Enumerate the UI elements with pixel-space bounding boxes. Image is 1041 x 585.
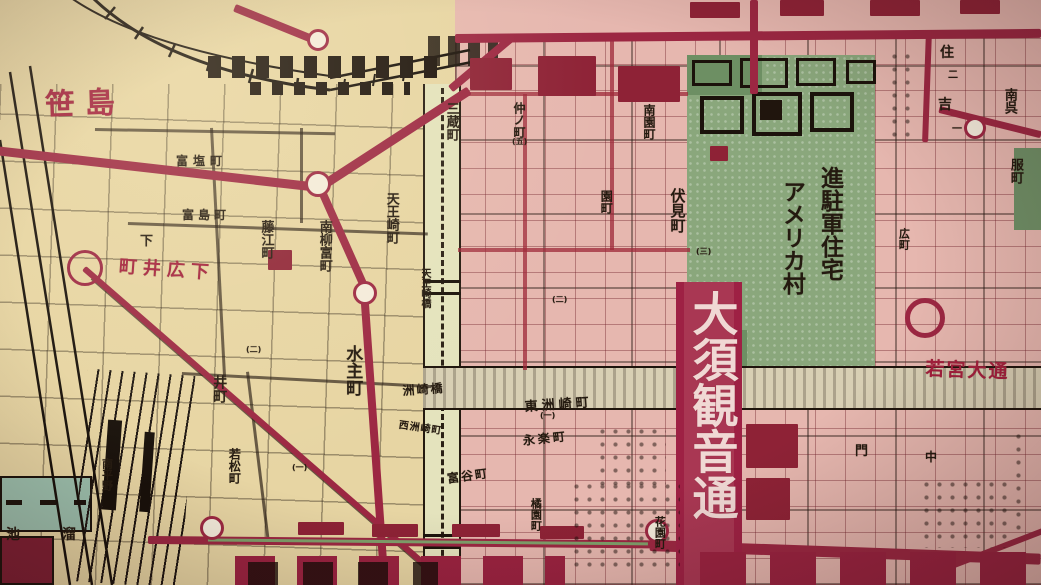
sumiyoshi-block1-label: 一 bbox=[952, 120, 962, 135]
nakano-cho-label: 仲ノ町 bbox=[510, 102, 528, 138]
nishi-suzaki-label: 西洲崎町 bbox=[398, 416, 444, 437]
sumiyoshi-1-label: 住 bbox=[940, 42, 954, 62]
sumiyoshi-block2-label: 二 bbox=[948, 66, 958, 81]
hiro-cho-label: 広町 bbox=[896, 228, 911, 250]
shimo-hiroi-label: 町井広下 bbox=[118, 252, 216, 285]
tomishio-label: 富塩町 bbox=[176, 152, 227, 169]
monzen-label: 門 bbox=[855, 440, 868, 459]
tomitani-label: 富谷町 bbox=[446, 464, 490, 487]
tennozaki-label: 天王崎町 bbox=[378, 192, 403, 244]
minami-yanagitomi-label: 南柳富町 bbox=[312, 220, 335, 272]
tennozaki-bashi-label: 天王崎橋 bbox=[418, 268, 431, 308]
osu-kannon-dori-label: 大須観音通 bbox=[686, 290, 738, 520]
fushimi-label: 伏見町 bbox=[663, 188, 692, 233]
tomishima-label: 富島町 bbox=[182, 206, 230, 223]
america-mura-label: アメリカ村 bbox=[776, 180, 806, 295]
fujie-label: 藤江町 bbox=[256, 220, 276, 259]
block-no-3-label: (三) bbox=[696, 246, 711, 257]
hanazono-label: 花園町 bbox=[652, 516, 667, 549]
naka-label: 中 bbox=[925, 448, 937, 465]
block-no-2-label: (二) bbox=[246, 344, 261, 355]
sumiyoshi-2-label: 吉 bbox=[938, 94, 952, 114]
sasajima-label: 笹島 bbox=[44, 77, 125, 124]
higashi-suzaki-label: 東洲崎町 bbox=[524, 391, 593, 415]
i-cho-label: 井町 bbox=[206, 375, 231, 403]
sono-machi-label: 園町 bbox=[596, 190, 615, 214]
shinchugun-jutaku-label: 進駐軍住宅 bbox=[814, 166, 844, 281]
wakamiya-odori-label: 若宮大通 bbox=[925, 354, 1010, 384]
block-no-1b-label: (一) bbox=[540, 410, 555, 421]
map-labels-layer: 笹島町井広下大須観音通若宮大通富島町富塩町下藤江町南柳富町水主町天王崎町井町若松… bbox=[0, 0, 1041, 585]
eiraku-label: 永楽町 bbox=[522, 427, 569, 449]
wakamatsu-label: 若松町 bbox=[224, 448, 244, 484]
minami-gofuku-b-label: 服町 bbox=[1006, 158, 1023, 184]
minami-hirano-label: 南平野 bbox=[98, 458, 115, 491]
suzaki-bashi-label: 洲崎橋 bbox=[402, 379, 445, 399]
block-no-1-label: (一) bbox=[292, 462, 307, 473]
block-no-5-label: (五) bbox=[512, 136, 527, 147]
shimo-label: 下 bbox=[140, 230, 153, 249]
historical-map-canvas: 笹島町井広下大須観音通若宮大通富島町富塩町下藤江町南柳富町水主町天王崎町井町若松… bbox=[0, 0, 1041, 585]
kako-machi-label: 水主町 bbox=[330, 345, 374, 396]
minami-gofuku-a-label: 南呉 bbox=[1000, 88, 1017, 114]
tameike-label: 池 溜 bbox=[6, 524, 90, 544]
sanzo-label: 三蔵町 bbox=[440, 102, 461, 141]
block-no-2b-label: (二) bbox=[552, 294, 567, 305]
minami-sono-label: 南園町 bbox=[640, 104, 658, 140]
kitsuen-label: 橘園町 bbox=[528, 498, 543, 531]
